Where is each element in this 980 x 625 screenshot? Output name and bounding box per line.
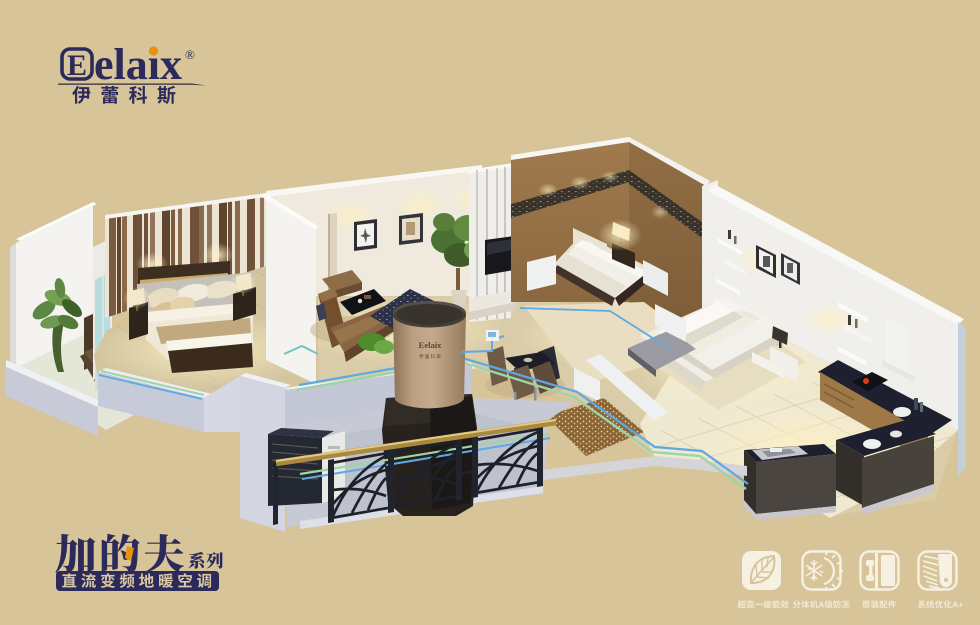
svg-text:A+: A+ bbox=[952, 600, 963, 610]
svg-text:A: A bbox=[818, 600, 824, 610]
